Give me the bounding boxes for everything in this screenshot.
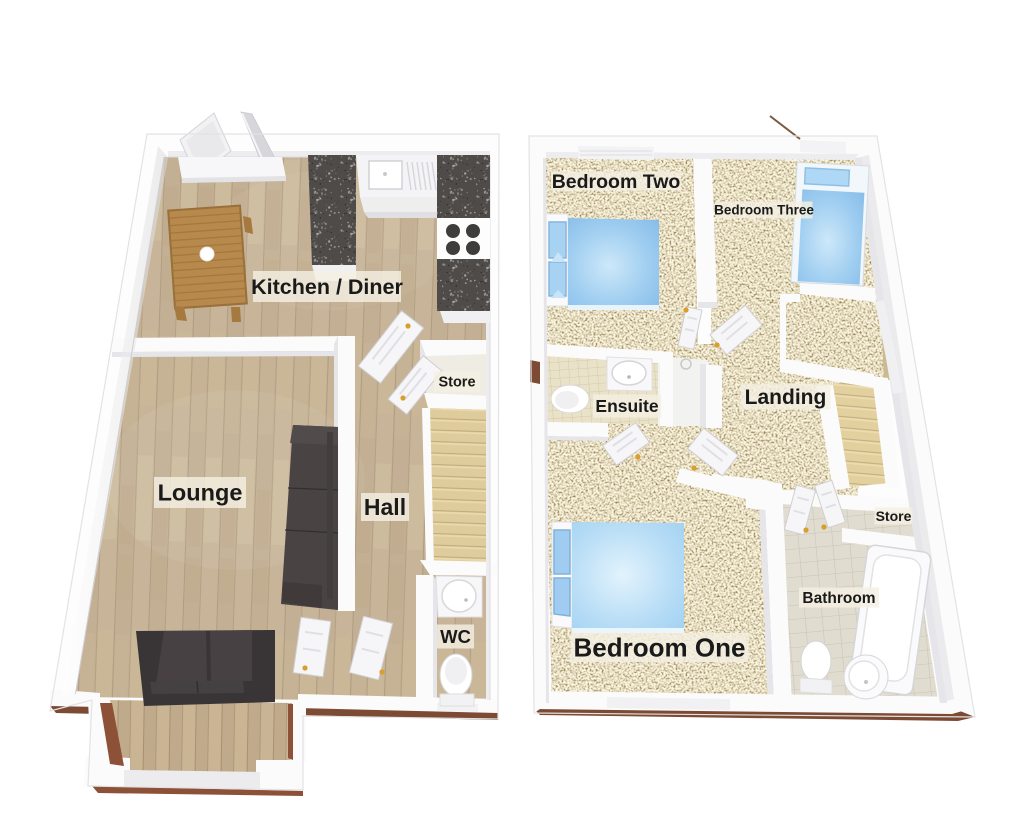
svg-text:Store: Store (438, 375, 475, 391)
svg-text:Lounge: Lounge (158, 480, 243, 506)
svg-text:WC: WC (440, 626, 471, 647)
svg-text:Hall: Hall (364, 494, 406, 520)
svg-text:Store: Store (876, 508, 912, 524)
svg-text:Bedroom One: Bedroom One (574, 633, 746, 663)
svg-text:Bedroom Two: Bedroom Two (552, 171, 681, 193)
svg-text:Ensuite: Ensuite (595, 396, 658, 416)
svg-text:Bedroom Three: Bedroom Three (714, 203, 814, 218)
svg-text:Kitchen / Diner: Kitchen / Diner (251, 275, 403, 299)
svg-text:Landing: Landing (745, 386, 827, 409)
svg-text:Bathroom: Bathroom (802, 590, 875, 607)
